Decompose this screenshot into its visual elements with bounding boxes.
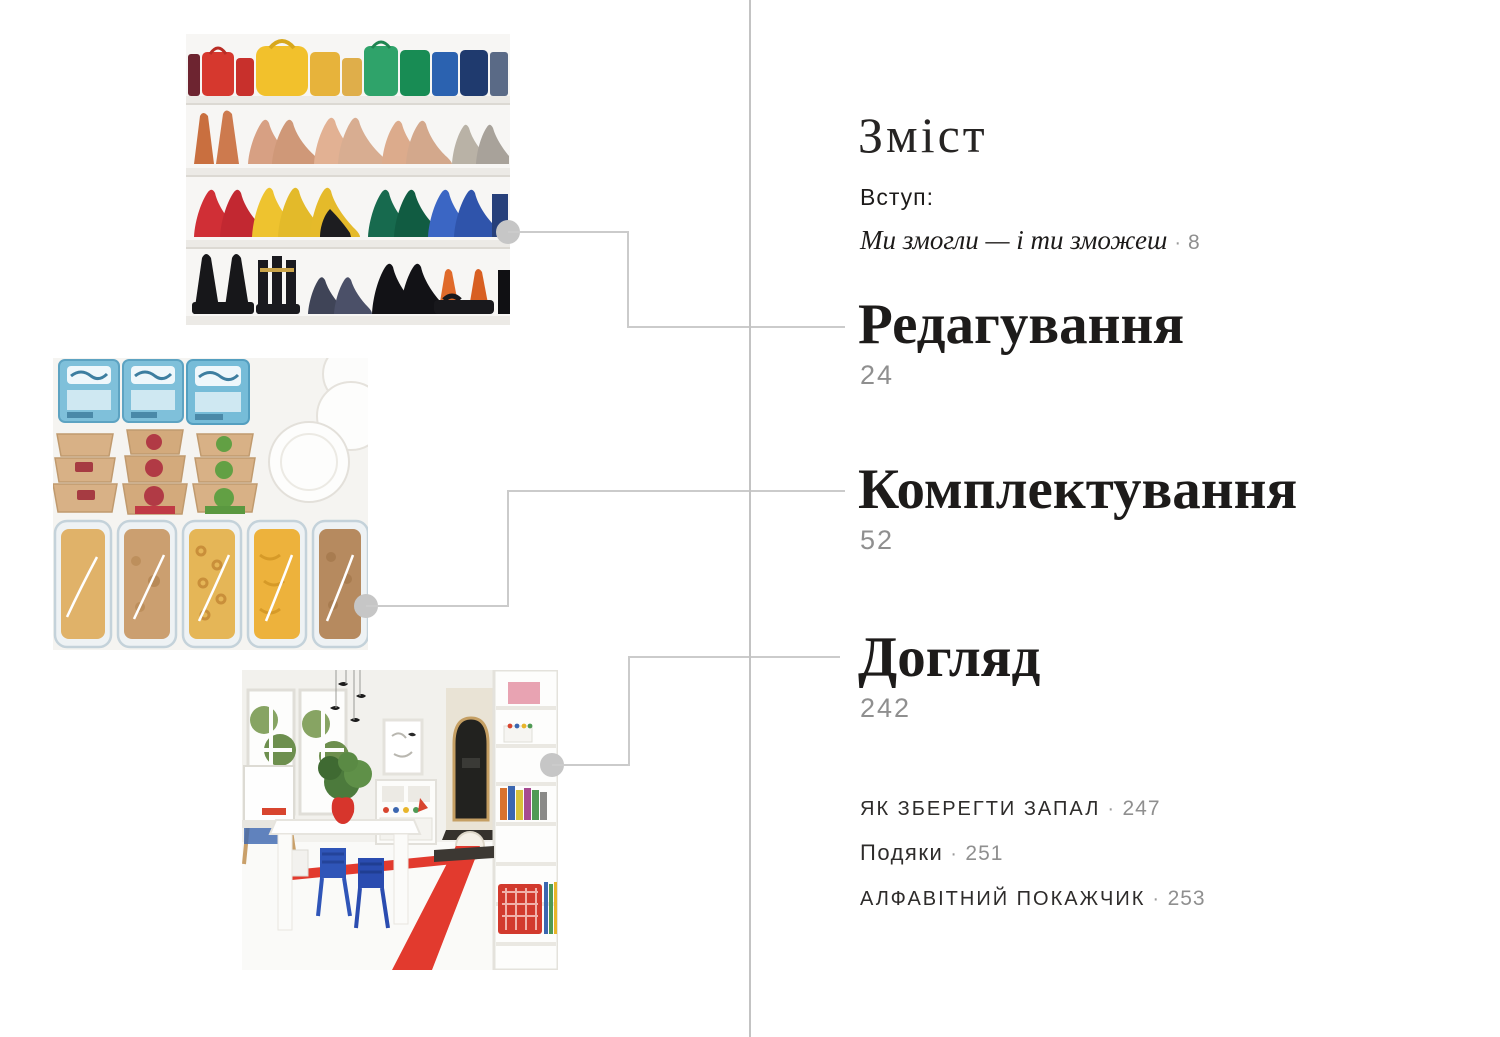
connector-line-care-h1: [552, 764, 629, 766]
chapter-title-editing: Редагування: [858, 296, 1184, 353]
backmatter-entry-acknowledgements: Подяки·251: [860, 842, 1003, 864]
connector-line-assembling-h1: [366, 605, 508, 607]
intro-entry: Ми змогли — і ти зможеш·8: [860, 226, 1201, 256]
connector-line-editing-h1: [508, 231, 628, 233]
playroom-illustration: [242, 670, 558, 970]
backmatter-entry-label: Алфавітний покажчик: [860, 888, 1145, 910]
connector-line-assembling-h2: [507, 490, 845, 492]
backmatter-entry-page: 251: [965, 842, 1003, 865]
chapter-title-care: Догляд: [858, 629, 1040, 686]
backmatter-entry-keep-momentum: Як зберегти запал·247: [860, 797, 1161, 819]
connector-line-editing-h2: [627, 326, 845, 328]
intro-label: Вступ:: [860, 186, 934, 209]
intro-entry-separator: ·: [1167, 232, 1188, 254]
backmatter-entry-separator: ·: [1100, 798, 1122, 820]
backmatter-entry-page: 253: [1168, 887, 1206, 910]
backmatter-entry-index: Алфавітний покажчик·253: [860, 887, 1206, 909]
shoe-closet-illustration: [186, 34, 510, 325]
page-divider-line: [749, 0, 751, 1037]
chapter-page-care: 242: [860, 695, 911, 722]
playroom-photo: [242, 670, 558, 970]
connector-line-care-h2: [628, 656, 840, 658]
chapter-page-editing: 24: [860, 362, 894, 389]
backmatter-entry-separator: ·: [943, 843, 965, 865]
backmatter-entry-label: Подяки: [860, 840, 943, 865]
connector-line-assembling-v: [507, 491, 509, 607]
intro-entry-title: Ми змогли — і ти зможеш: [860, 225, 1167, 255]
pantry-bins-photo: [53, 358, 368, 650]
connector-line-care-v: [628, 657, 630, 766]
intro-entry-page: 8: [1188, 231, 1201, 254]
backmatter-entry-separator: ·: [1145, 888, 1167, 910]
book-toc-page: Зміст Вступ: Ми змогли — і ти зможеш·8 Р…: [0, 0, 1500, 1037]
connector-line-editing-v: [627, 231, 629, 327]
chapter-title-assembling: Комплектування: [858, 461, 1297, 518]
backmatter-entry-label: Як зберегти запал: [860, 798, 1100, 820]
pantry-illustration: [53, 358, 368, 650]
toc-title: Зміст: [858, 110, 988, 160]
shoe-closet-photo: [186, 34, 510, 325]
backmatter-entry-page: 247: [1123, 797, 1161, 820]
chapter-page-assembling: 52: [860, 527, 894, 554]
